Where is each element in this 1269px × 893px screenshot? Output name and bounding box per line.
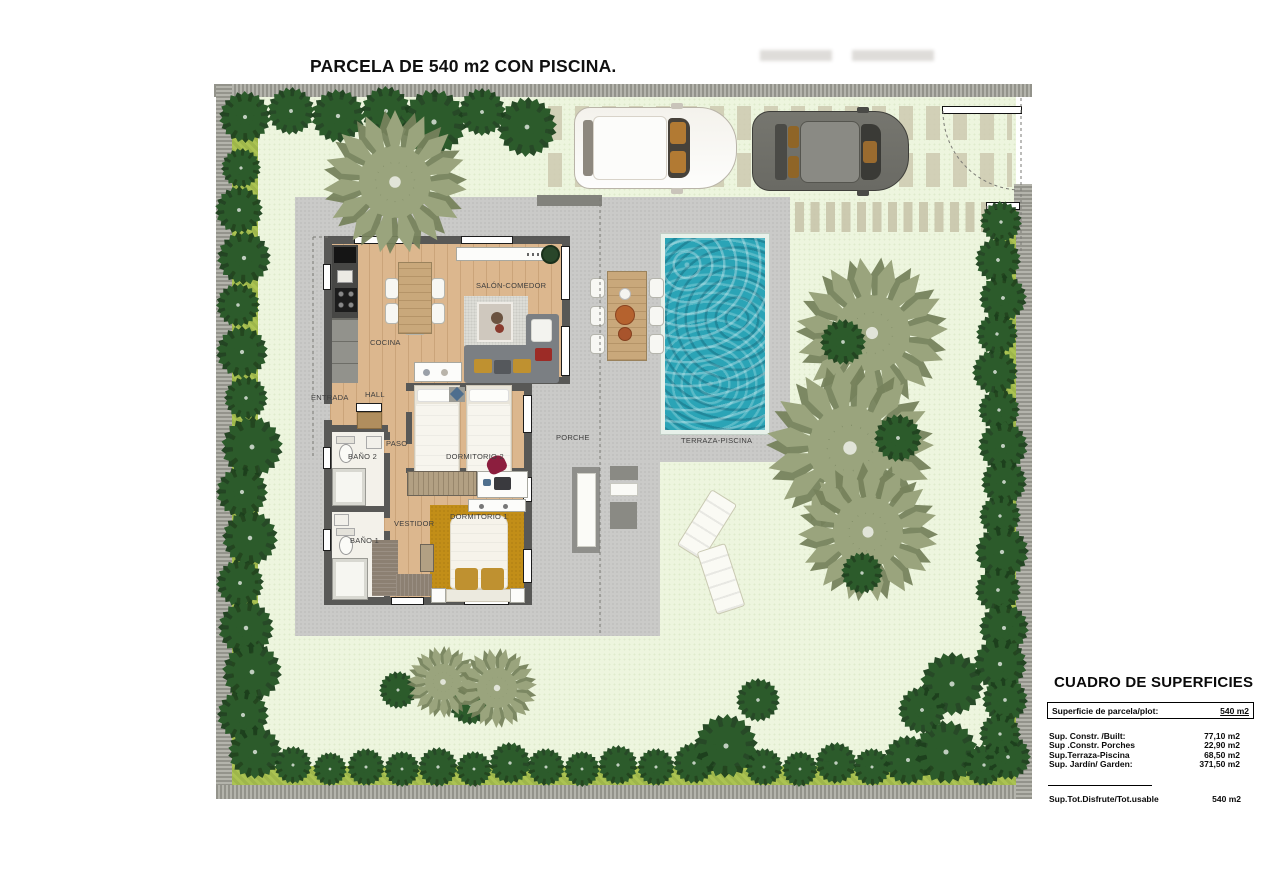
- surfaces-separator: [1048, 785, 1152, 786]
- decor-item: [441, 369, 448, 376]
- nightstand: [510, 588, 525, 603]
- house-wall: [324, 506, 388, 512]
- laptop: [494, 477, 511, 490]
- car-rear-window: [775, 124, 787, 180]
- room-label-hall: HALL: [365, 390, 385, 399]
- vanity: [468, 499, 526, 512]
- headboard: [446, 589, 512, 602]
- door-opening: [384, 518, 390, 531]
- dining-chair: [431, 278, 445, 299]
- sliding-door: [561, 246, 570, 300]
- porch-table: [610, 466, 638, 480]
- surface-row-value: 371,50 m2: [1199, 760, 1240, 769]
- side-console: [414, 362, 462, 382]
- shower-tray: [332, 468, 366, 506]
- pet-bed: [477, 302, 513, 342]
- watermark-blob: [852, 50, 934, 61]
- car-seat: [788, 156, 799, 178]
- watermark-blob: [760, 50, 832, 61]
- car-rear-window: [583, 120, 593, 176]
- sliding-door: [561, 326, 570, 376]
- cooktop: [335, 288, 357, 312]
- car-mirror: [857, 107, 869, 113]
- table-bowl: [618, 327, 632, 341]
- surfaces-row: Sup. Jardín/ Garden: 371,50 m2: [1047, 760, 1244, 769]
- oven: [334, 247, 356, 263]
- window: [523, 395, 532, 433]
- outdoor-chair: [649, 306, 664, 326]
- gray-car: [752, 111, 909, 191]
- vehicle-gate-leaf: [942, 106, 1022, 114]
- room-label-terraza-piscina: TERRAZA-PISCINA: [681, 436, 752, 445]
- hedge-right: [994, 208, 1016, 788]
- page-title: PARCELA DE 540 m2 CON PISCINA.: [310, 56, 616, 77]
- wardrobe: [407, 471, 477, 496]
- pet: [495, 324, 504, 333]
- surfaces-plot-row: Superficie de parcela/plot: 540 m2: [1047, 702, 1254, 719]
- table-plate: [619, 288, 631, 300]
- bed-pillow: [455, 568, 478, 590]
- window: [461, 236, 513, 244]
- kitchen-sink: [337, 270, 353, 283]
- entry-door-mat: [357, 412, 382, 429]
- surfaces-plot-label: Superficie de parcela/plot:: [1052, 706, 1158, 716]
- car-seat: [788, 126, 799, 148]
- car-seat: [670, 122, 686, 144]
- car-windshield: [861, 124, 881, 180]
- terrace-low-wall: [537, 195, 602, 206]
- table-bowl: [615, 305, 635, 325]
- window: [523, 549, 532, 583]
- room-label-paso: PASO: [386, 439, 407, 448]
- pillow: [469, 389, 509, 402]
- window: [323, 447, 331, 469]
- car-mirror: [671, 188, 683, 194]
- surfaces-total-label: Sup.Tot.Disfrute/Tot.usable: [1049, 794, 1159, 804]
- surface-row-label: Sup. Jardín/ Garden:: [1049, 760, 1133, 769]
- hedge-left: [232, 97, 258, 788]
- room-label-dormitorio2: DORMITORIO 2: [446, 452, 504, 461]
- plant-pot: [541, 245, 560, 264]
- window: [391, 597, 424, 605]
- room-label-vestidor: VESTIDOR: [394, 519, 434, 528]
- dining-chair: [385, 278, 399, 299]
- perimeter-wall-bottom: [216, 785, 1032, 799]
- room-label-bano1: BAÑO 1: [350, 536, 379, 545]
- sofa-cushion: [531, 319, 552, 342]
- window: [354, 236, 406, 244]
- closet-block: [420, 544, 434, 572]
- surfaces-total-row: Sup.Tot.Disfrute/Tot.usable 540 m2: [1047, 794, 1245, 804]
- car-roof: [800, 121, 860, 183]
- outdoor-chair: [649, 334, 664, 354]
- surfaces-table-title: CUADRO DE SUPERFICIES: [1054, 674, 1253, 691]
- room-label-salon-comedor: SALÓN-COMEDOR: [476, 281, 546, 290]
- desk-item: [483, 479, 491, 486]
- dining-chair: [385, 303, 399, 324]
- sofa-cushion: [513, 359, 531, 373]
- outdoor-chair: [590, 334, 605, 354]
- gate-pillar: [1014, 184, 1032, 204]
- nightstand: [431, 588, 446, 603]
- room-label-bano2: BAÑO 2: [348, 452, 377, 461]
- desk: [477, 471, 528, 498]
- porch-table: [610, 483, 638, 496]
- porch-sofa-cushion: [577, 473, 596, 547]
- toilet: [336, 436, 355, 444]
- perimeter-wall-top: [214, 84, 1032, 97]
- kitchen-base-cabinet: [332, 318, 358, 383]
- car-roof: [593, 116, 667, 180]
- washbasin: [366, 436, 382, 449]
- sofa-cushion: [494, 360, 511, 374]
- dining-table: [398, 262, 432, 334]
- outdoor-chair: [649, 278, 664, 298]
- decor-item: [503, 504, 508, 509]
- bed-pillow: [481, 568, 504, 590]
- room-label-dormitorio1: DORMITORIO 1: [450, 512, 508, 521]
- surfaces-plot-value: 540 m2: [1220, 706, 1249, 716]
- car-seat: [863, 141, 877, 163]
- dining-chair: [431, 303, 445, 324]
- shower-tray: [332, 558, 368, 600]
- sofa-cushion: [535, 348, 552, 361]
- outdoor-chair: [590, 278, 605, 298]
- car-mirror: [671, 103, 683, 109]
- decor-item: [479, 504, 484, 509]
- tv-console: [456, 247, 546, 261]
- console-knobs: [527, 253, 539, 256]
- driveway-paving-row: [795, 202, 1013, 232]
- car-windshield: [668, 118, 690, 178]
- perimeter-wall-right: [1016, 186, 1032, 799]
- surfaces-rows: Sup. Constr. /Built: 77,10 m2 Sup .Const…: [1047, 732, 1244, 769]
- washbasin: [334, 514, 349, 526]
- room-label-cocina: COCINA: [370, 338, 401, 347]
- porch-seat: [610, 502, 637, 529]
- outdoor-chair: [590, 306, 605, 326]
- duvet: [416, 404, 458, 476]
- entry-step: [356, 403, 382, 412]
- closet-counter: [372, 540, 398, 596]
- toilet: [336, 528, 355, 536]
- car-mirror: [857, 190, 869, 196]
- pool-water: [665, 238, 765, 430]
- window: [323, 529, 331, 551]
- room-label-entrada: ENTRADA: [311, 393, 349, 402]
- perimeter-wall-left: [216, 84, 232, 798]
- car-seat: [670, 151, 686, 173]
- pet: [491, 312, 503, 324]
- pedestrian-gate-leaf: [986, 202, 1020, 210]
- window: [323, 264, 331, 290]
- white-car: [574, 107, 737, 189]
- pool: [660, 233, 770, 435]
- sofa-cushion: [474, 359, 492, 373]
- room-label-porche: PORCHE: [556, 433, 590, 442]
- surfaces-total-value: 540 m2: [1212, 794, 1241, 804]
- closet-counter: [396, 574, 432, 596]
- house-wall: [324, 236, 332, 404]
- site-plan-canvas: PARCELA DE 540 m2 CON PISCINA.: [0, 0, 1269, 893]
- decor-item: [423, 369, 430, 376]
